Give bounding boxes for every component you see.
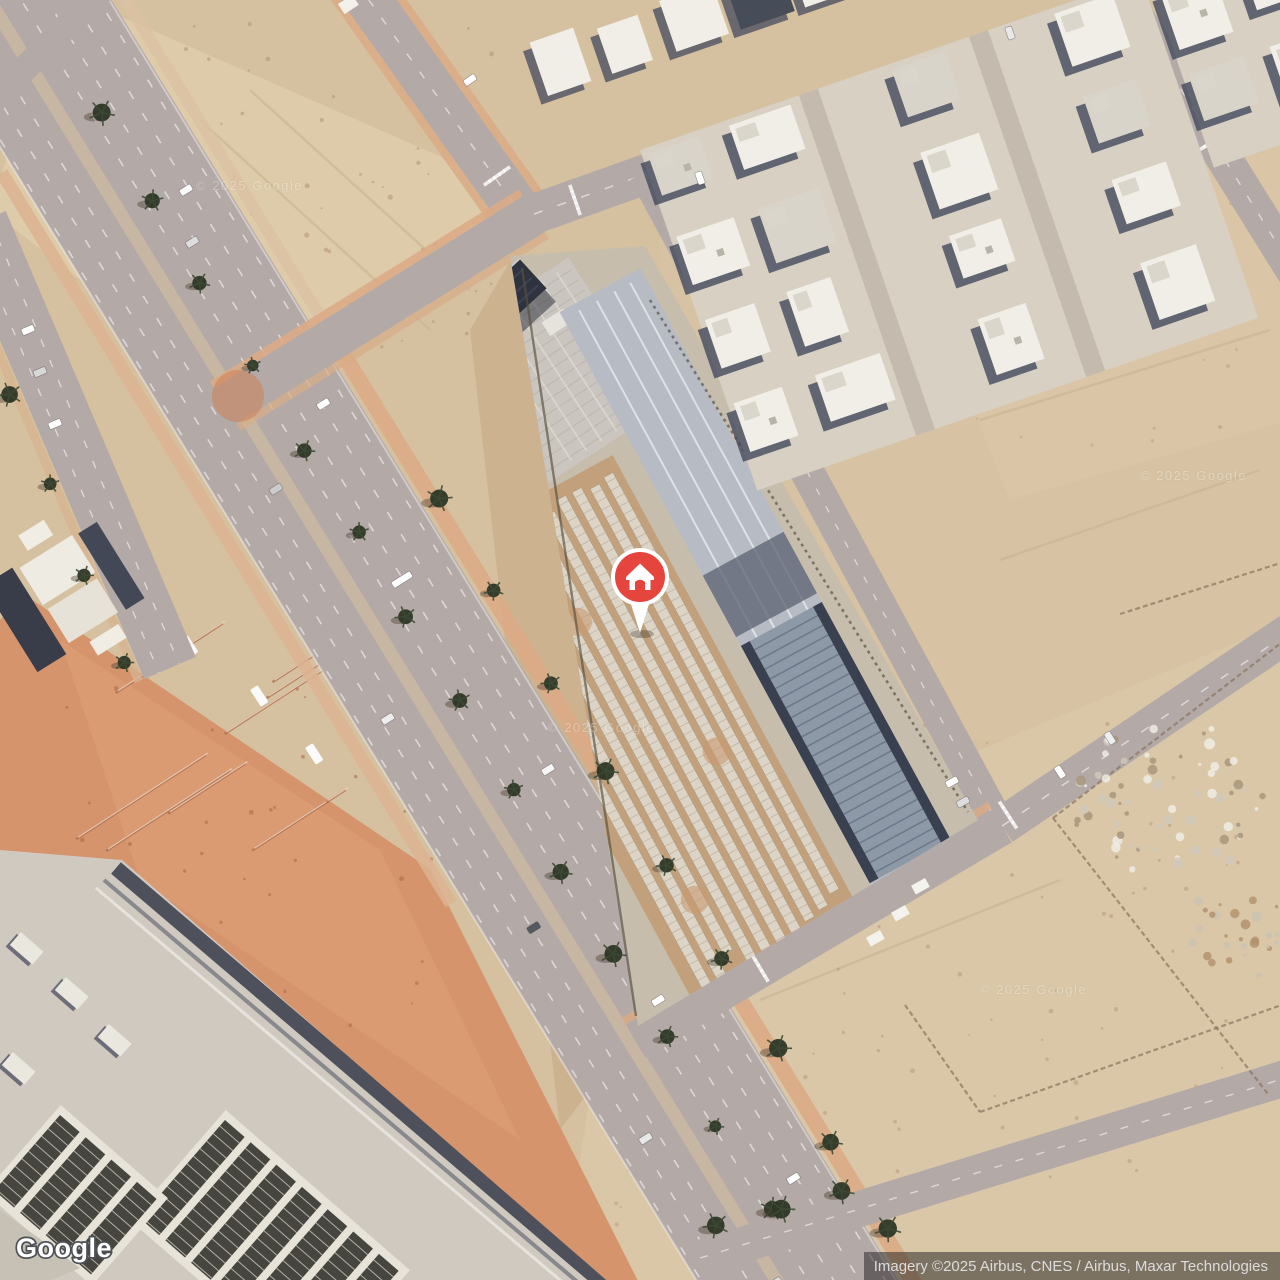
map-viewport[interactable]: © 2025 Google © 2025 Google © 2025 Googl… [0, 0, 1280, 1280]
location-marker-pin[interactable] [598, 535, 682, 639]
attribution-bar: Imagery ©2025 Airbus, CNES / Airbus, Max… [864, 1252, 1280, 1280]
google-logo-text: Google [16, 1233, 112, 1263]
satellite-map-canvas[interactable] [0, 0, 1280, 1280]
google-logo[interactable]: Google [12, 1230, 142, 1266]
attribution-text: Imagery ©2025 Airbus, CNES / Airbus, Max… [874, 1258, 1268, 1275]
marker-ground-shadow [630, 630, 654, 638]
